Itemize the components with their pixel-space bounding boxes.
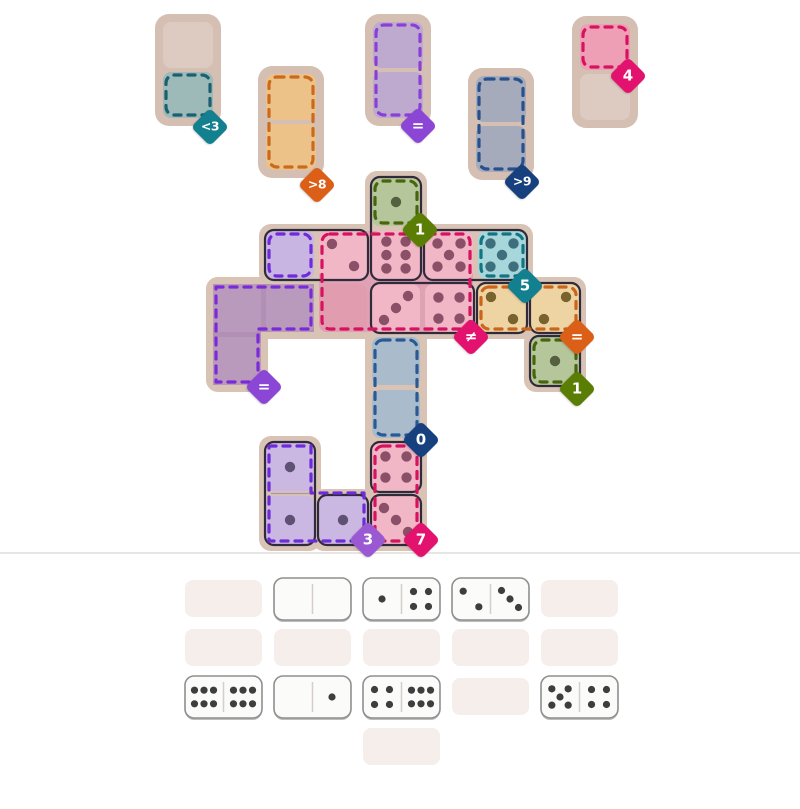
pip [565,685,572,692]
pip [210,700,217,707]
constraint-badge: 4 [609,57,647,95]
pip [328,693,335,700]
pip [410,603,417,610]
pip [210,687,217,694]
pip [400,263,410,273]
pip [380,472,390,482]
pip [285,515,295,525]
pip [539,314,549,324]
pip [380,451,390,461]
board-cell-B2[interactable] [266,284,314,332]
slot-cell [476,76,526,122]
domino-puzzle-game: <3 >8 = >9 4 1 5 ≠ = 1 0 = 3 7 [0,0,800,809]
pip [561,292,571,302]
slot-cell [373,22,423,68]
pip [432,238,442,248]
constraint-badge-label: 1 [564,376,591,403]
pip [548,685,555,692]
pip [403,291,413,301]
constraint-badge: <3 [191,108,229,146]
pip [371,686,378,693]
constraint-badge-label: = [564,324,591,351]
pip [408,700,415,707]
pip [417,700,424,707]
constraint-badge-label: 7 [408,527,435,554]
pip [401,472,411,482]
pip [381,263,391,273]
pip [230,687,237,694]
constraint-badge: ≠ [452,318,490,356]
constraint-badge-label: = [405,113,432,140]
constraint-badge: 1 [558,370,596,408]
pip [603,686,610,693]
pip [249,700,256,707]
tray-slot-empty [363,629,440,666]
constraint-badge-label: 3 [355,527,382,554]
pip [400,250,410,260]
constraint-badge-label: 5 [512,273,539,300]
tray-slot-empty [363,728,440,765]
constraint-badge-label: >9 [509,169,536,196]
slot-cell [163,22,213,68]
pip [200,687,207,694]
constraint-badge: 7 [402,521,440,559]
constraint-badge: 3 [349,521,387,559]
tray-slot-empty [541,629,618,666]
pip [338,515,348,525]
tray-slot-empty [185,629,262,666]
pip [408,687,415,694]
pip [239,700,246,707]
pip [386,686,393,693]
pip [378,595,385,602]
tray-slot-empty [274,629,351,666]
pip [349,261,359,271]
pip [433,292,443,302]
tray-slot-empty [541,580,618,617]
constraint-badge: 1 [401,211,439,249]
pip [508,238,518,248]
constraint-badge-label: 0 [408,427,435,454]
board-cell-B1[interactable] [266,231,314,279]
constraint-badge-label: >8 [304,172,331,199]
pip [379,315,389,325]
pip [455,238,465,248]
constraint-badge: = [399,107,437,145]
pip [425,588,432,595]
board-cell-D3[interactable] [372,337,420,385]
pip [485,261,495,271]
pip [460,588,467,595]
pip [191,687,198,694]
pip [239,687,246,694]
pip [200,700,207,707]
constraint-badge: 5 [506,267,544,305]
pip [508,261,518,271]
pip [425,603,432,610]
tray-slot-empty [452,629,529,666]
pip [427,687,434,694]
pip [432,261,442,271]
pip [410,588,417,595]
pip [454,292,464,302]
pip [486,292,496,302]
pip [427,700,434,707]
board-cell-C1[interactable] [319,231,367,279]
pip [381,250,391,260]
pip [506,595,513,602]
pip [565,702,572,709]
tray-slot-empty [185,580,262,617]
pip [191,700,198,707]
pip [603,701,610,708]
tray-slot-empty [452,678,529,715]
pip [249,687,256,694]
pip [381,236,391,246]
pip [433,313,443,323]
pip [391,303,401,313]
pip [588,686,595,693]
constraint-badge: = [558,318,596,356]
constraint-badge: = [245,368,283,406]
constraint-badge-label: <3 [197,114,224,141]
pip [391,197,401,207]
pip [548,702,555,709]
pip [475,603,482,610]
constraint-badge: >8 [298,166,336,204]
game-canvas [0,0,800,809]
slot-cell [266,74,316,120]
pip [485,238,495,248]
pip [550,356,560,366]
constraint-badge-label: 4 [615,63,642,90]
pip [285,462,295,472]
pip [508,314,518,324]
pip [556,693,563,700]
slot-cell [266,124,316,170]
pip [498,587,505,594]
pip [444,250,454,260]
constraint-badge-label: ≠ [458,324,485,351]
pip [497,250,507,260]
pip [379,503,389,513]
pip [371,701,378,708]
pip [386,701,393,708]
constraint-badge-label: 1 [407,217,434,244]
board-cell-A2[interactable] [213,284,261,332]
pip [391,515,401,525]
constraint-badge: >9 [503,163,541,201]
pip [515,604,522,611]
pip [417,687,424,694]
pip [454,313,464,323]
pip [588,701,595,708]
pip [230,700,237,707]
pip [327,239,337,249]
constraint-badge: 0 [402,421,440,459]
board-cell-C2[interactable] [319,284,367,332]
constraint-badge-label: = [251,374,278,401]
pip [455,261,465,271]
